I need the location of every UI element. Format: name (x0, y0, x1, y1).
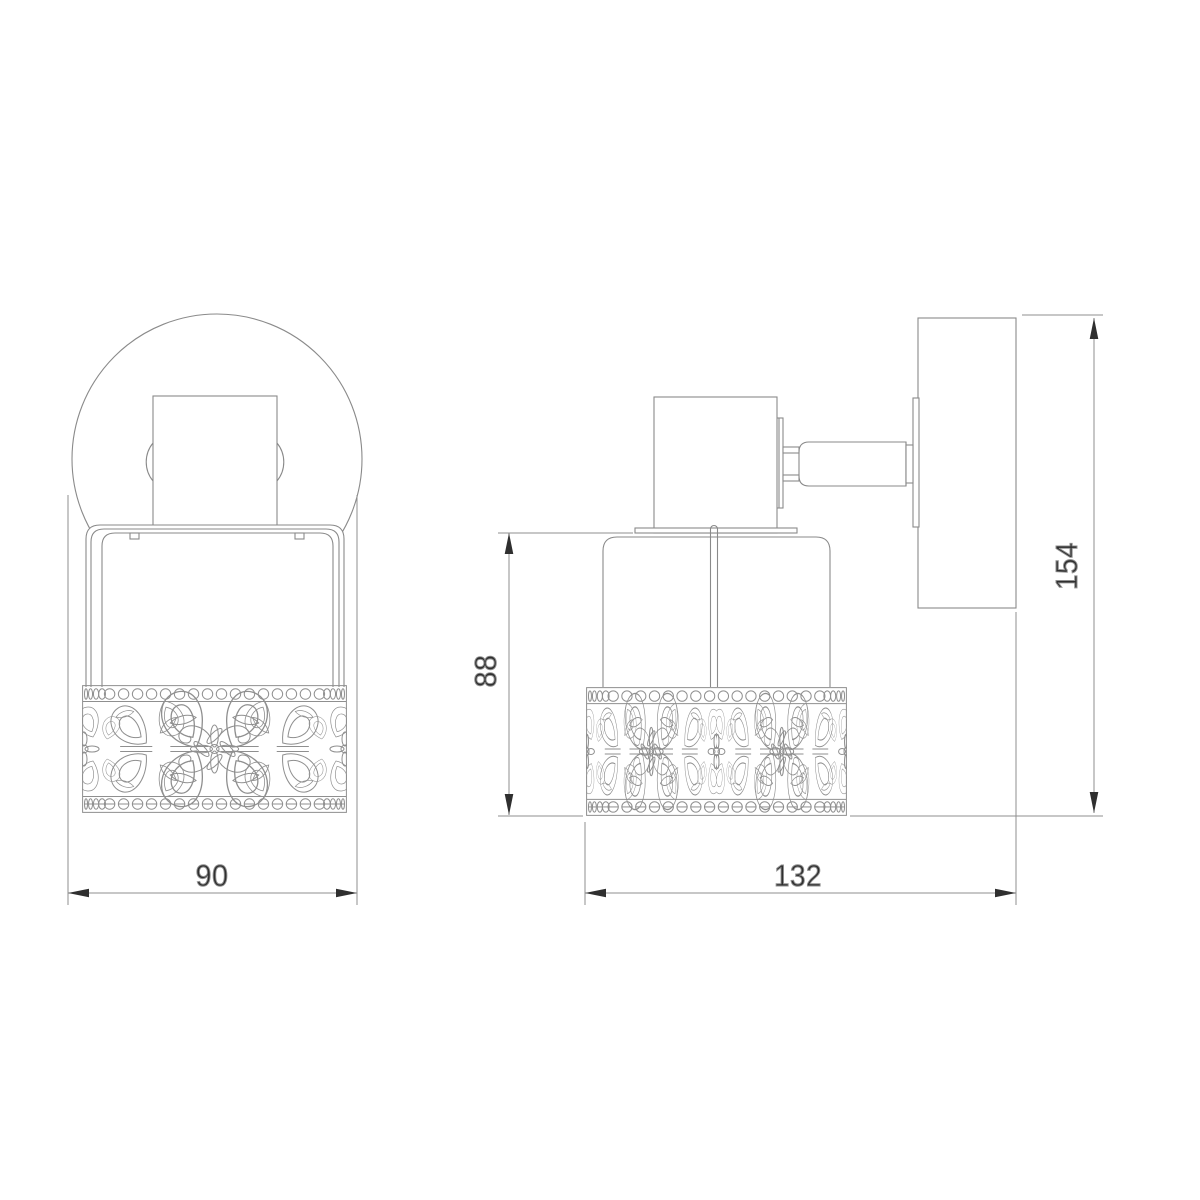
dimension-154-value: 154 (1049, 542, 1084, 590)
dimension-132-value: 132 (774, 858, 822, 893)
shade-front (86, 525, 344, 687)
arrowhead-bottom (1090, 792, 1099, 813)
ornament-band-front (75, 686, 354, 813)
bracket-pin-top (783, 447, 799, 453)
arrowhead-right (336, 889, 357, 898)
joint-bracket (775, 418, 799, 508)
dimension-88: 88 (468, 533, 633, 816)
arrowhead-bottom (505, 794, 514, 815)
lamp-body-side (654, 397, 777, 533)
mounting-ring-side (913, 398, 919, 527)
joint-arc-right (277, 443, 284, 481)
shade-cap-side (635, 528, 797, 533)
front-view (72, 314, 362, 812)
arrowhead-left (585, 889, 606, 898)
wall-plate-side (918, 318, 1016, 608)
arrowhead-top (1090, 318, 1099, 339)
side-view (583, 318, 1016, 815)
arrowhead-top (505, 533, 514, 554)
dimension-88-value: 88 (468, 655, 503, 688)
arm-housing-front (153, 396, 277, 533)
shade-front-outer (86, 525, 344, 687)
swivel-arm (799, 442, 913, 486)
hanger-rod (711, 526, 718, 687)
arm-cylinder (799, 442, 906, 486)
arrowhead-left (68, 889, 89, 898)
arrowhead-right (995, 889, 1016, 898)
arm-connector (906, 445, 913, 483)
joint-arc-left (146, 443, 153, 481)
shade-side-outline (603, 537, 830, 687)
ornament-band-side (583, 688, 851, 816)
lamp-dimension-drawing: 90 132 88 154 (0, 0, 1200, 1200)
bracket-pin-bottom (783, 475, 799, 481)
dimension-90-value: 90 (196, 858, 229, 893)
technical-drawing-canvas: 90 132 88 154 (0, 0, 1200, 1200)
